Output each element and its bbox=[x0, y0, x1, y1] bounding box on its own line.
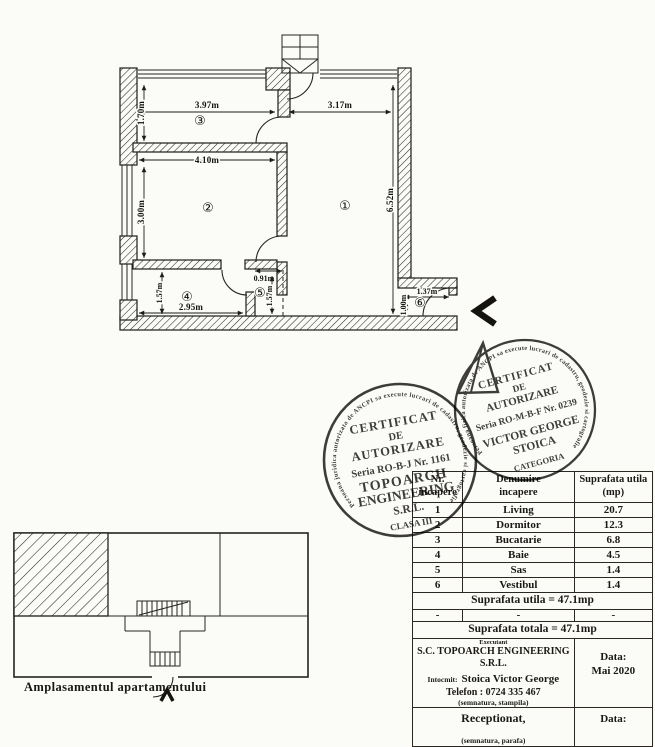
stair-run bbox=[137, 601, 190, 616]
room-label-vestibul: ⑥ bbox=[414, 296, 426, 311]
entrance-arrow bbox=[476, 298, 495, 324]
total-row: Suprafata totala = 47.1mp bbox=[413, 622, 653, 639]
table-row: 4 Baie 4.5 bbox=[413, 548, 653, 563]
bedroom-door-arc bbox=[256, 236, 282, 262]
svg-text:1.37m: 1.37m bbox=[417, 287, 438, 296]
intocmit-line: Intocmit: Stoica Victor George bbox=[413, 669, 574, 687]
exterior-walls bbox=[120, 68, 457, 330]
executant-row: Executant S.C. TOPOARCH ENGINEERING S.R.… bbox=[413, 639, 653, 708]
room-label-dormitor: ② bbox=[202, 201, 214, 216]
received-date-cell: Data: bbox=[574, 707, 652, 746]
executant-label: Executant bbox=[413, 639, 574, 646]
dimension-kitchen-width: 3.97m bbox=[139, 100, 275, 112]
received-label: Receptionat, bbox=[413, 711, 574, 725]
svg-text:1.57m: 1.57m bbox=[265, 285, 274, 306]
svg-text:S.R.L.: S.R.L. bbox=[392, 501, 425, 518]
dimension-bedroom-width: 4.10m bbox=[139, 155, 275, 165]
stamp-stoica: Persoana fizica autorizata de ANCPI sa e… bbox=[447, 334, 607, 490]
subtotal-cell: Suprafata utila = 47.1mp bbox=[413, 593, 653, 610]
entrance-door-arc bbox=[287, 73, 313, 99]
svg-text:1.57m: 1.57m bbox=[155, 282, 164, 303]
scanned-apartment-plan: { "floor_plan": { "rooms": [ {"symbol": … bbox=[0, 0, 655, 720]
room-label-living: ① bbox=[339, 199, 351, 214]
svg-text:1.70m: 1.70m bbox=[136, 101, 146, 126]
table-row: 6 Vestibul 1.4 bbox=[413, 578, 653, 593]
site-plan: Amplasamentul apartamentului bbox=[0, 520, 340, 720]
dash-row: - - - bbox=[413, 610, 653, 622]
date-value: Mai 2020 bbox=[575, 665, 652, 679]
bath-door-arc bbox=[222, 270, 247, 295]
kitchen-door-arc bbox=[256, 117, 282, 143]
svg-text:1.00m: 1.00m bbox=[399, 294, 408, 315]
svg-text:0.91m: 0.91m bbox=[254, 274, 275, 283]
floor-plan: 3.97m 3.17m 1.70m 4.10m 3.00m 6.52m 1.57… bbox=[0, 0, 655, 350]
apartment-location-hatch bbox=[14, 533, 108, 616]
received-cell: Receptionat, (semnatura, parafa) bbox=[413, 707, 575, 746]
phone: Telefon : 0724 335 467 bbox=[413, 687, 574, 699]
received-row: Receptionat, (semnatura, parafa) Data: bbox=[413, 707, 653, 746]
room-label-bucatarie: ③ bbox=[194, 114, 206, 129]
subtotal-row: Suprafata utila = 47.1mp bbox=[413, 593, 653, 610]
entry-corridor bbox=[125, 616, 205, 666]
svg-text:3.97m: 3.97m bbox=[195, 100, 220, 110]
table-row: 5 Sas 1.4 bbox=[413, 563, 653, 578]
dimension-living-depth: 6.52m bbox=[385, 85, 395, 314]
staircase-symbol bbox=[282, 35, 318, 73]
room-label-baie: ④ bbox=[181, 290, 193, 305]
site-plan-caption: Amplasamentul apartamentului bbox=[24, 680, 207, 694]
svg-text:4.10m: 4.10m bbox=[195, 155, 220, 165]
svg-text:6.52m: 6.52m bbox=[385, 188, 395, 213]
dimension-bath-depth: 1.57m bbox=[155, 272, 164, 314]
room-label-sas: ⑤ bbox=[254, 286, 266, 301]
intocmit-label: Intocmit: bbox=[428, 675, 458, 684]
entry-opening bbox=[152, 675, 178, 679]
executant-cell: Executant S.C. TOPOARCH ENGINEERING S.R.… bbox=[413, 639, 575, 708]
signature-note: (semnatura, stampila) bbox=[413, 699, 574, 707]
dimension-living-width: 3.17m bbox=[289, 100, 391, 112]
svg-text:3.00m: 3.00m bbox=[136, 200, 146, 225]
building-footprint bbox=[14, 533, 308, 701]
received-note: (semnatura, parafa) bbox=[413, 737, 574, 745]
total-cell: Suprafata totala = 47.1mp bbox=[413, 622, 653, 639]
date-cell: Data: Mai 2020 bbox=[574, 639, 652, 708]
svg-text:3.17m: 3.17m bbox=[328, 100, 353, 110]
dimension-vestibule-depth: 1.00m bbox=[399, 294, 408, 315]
date-label: Data: bbox=[575, 651, 652, 665]
executant-company: S.C. TOPOARCH ENGINEERING S.R.L. bbox=[413, 646, 574, 669]
intocmit-name: Stoica Victor George bbox=[462, 673, 560, 685]
